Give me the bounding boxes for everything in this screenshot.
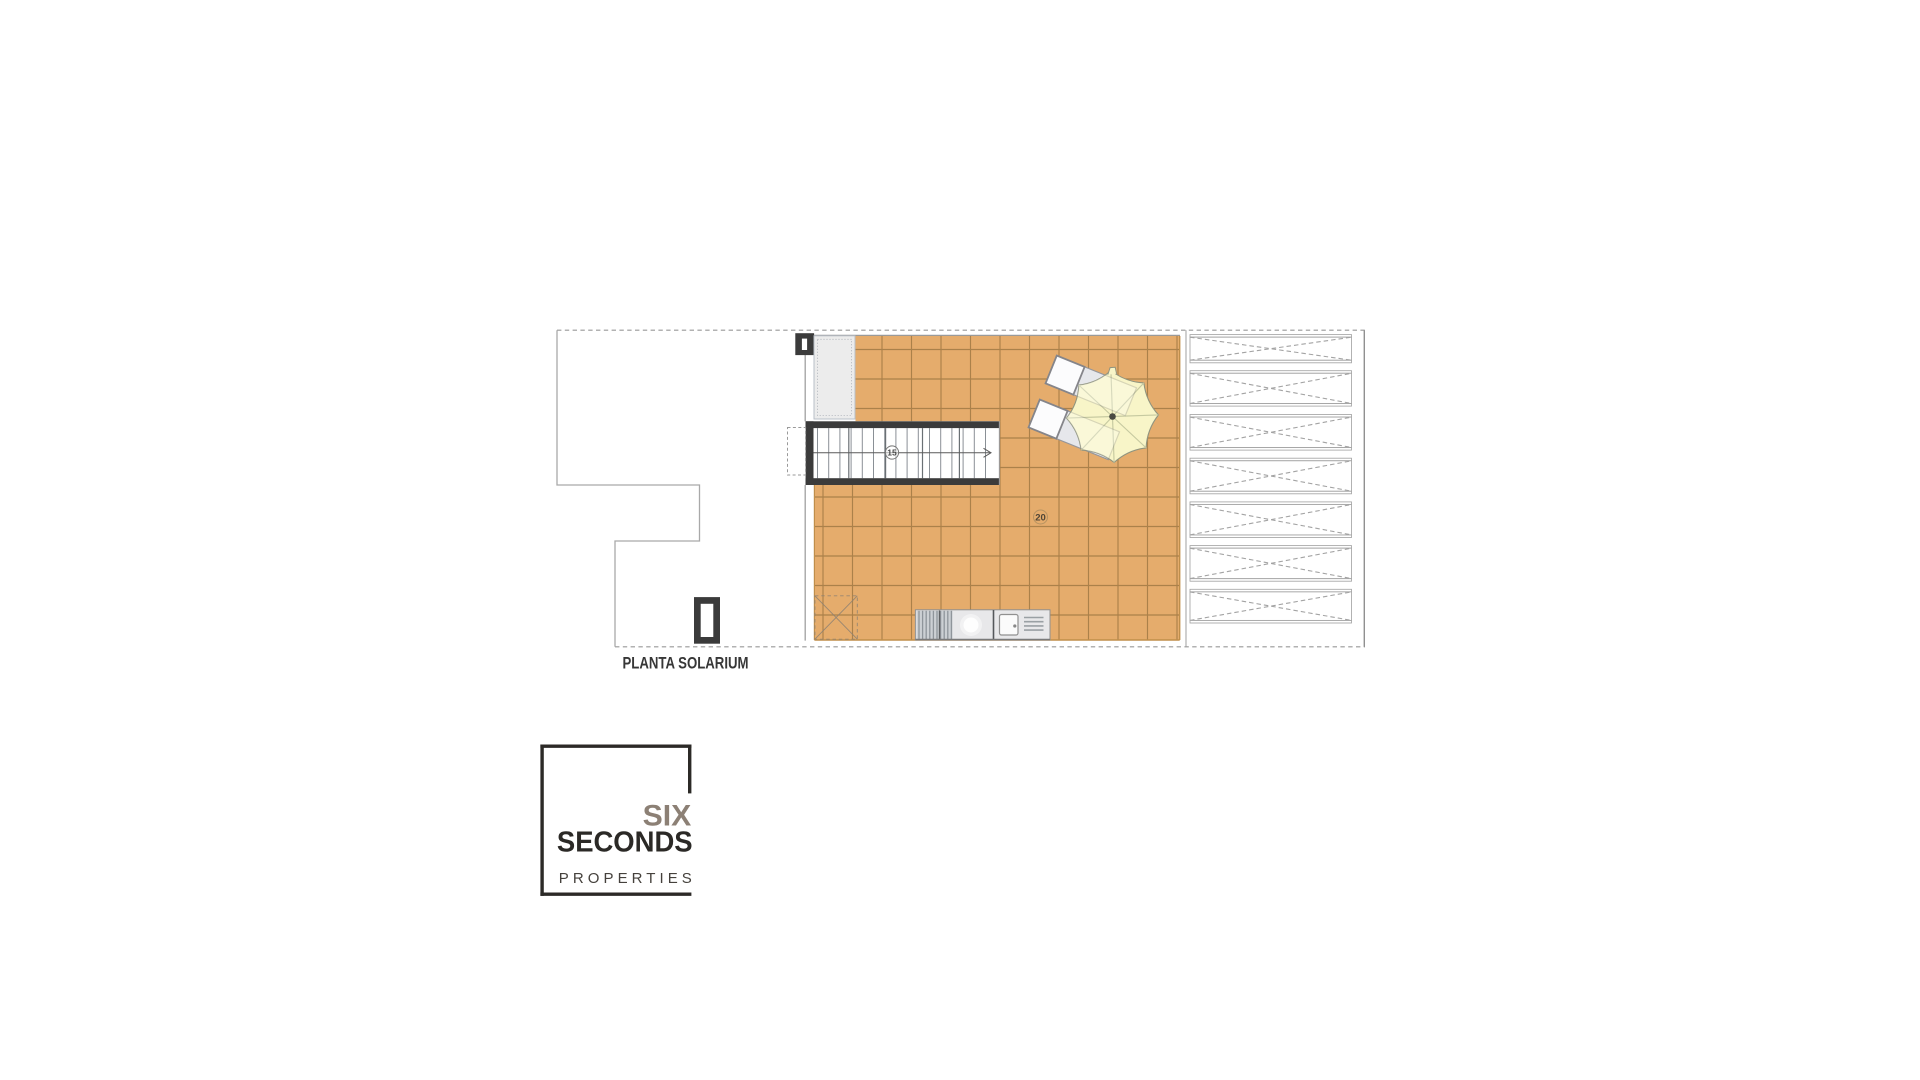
svg-text:15: 15 — [887, 448, 897, 458]
svg-text:PROPERTIES: PROPERTIES — [559, 870, 692, 887]
svg-text:20: 20 — [1035, 513, 1046, 524]
svg-text:SECONDS: SECONDS — [557, 827, 693, 859]
svg-text:PLANTA SOLARIUM: PLANTA SOLARIUM — [623, 654, 749, 672]
